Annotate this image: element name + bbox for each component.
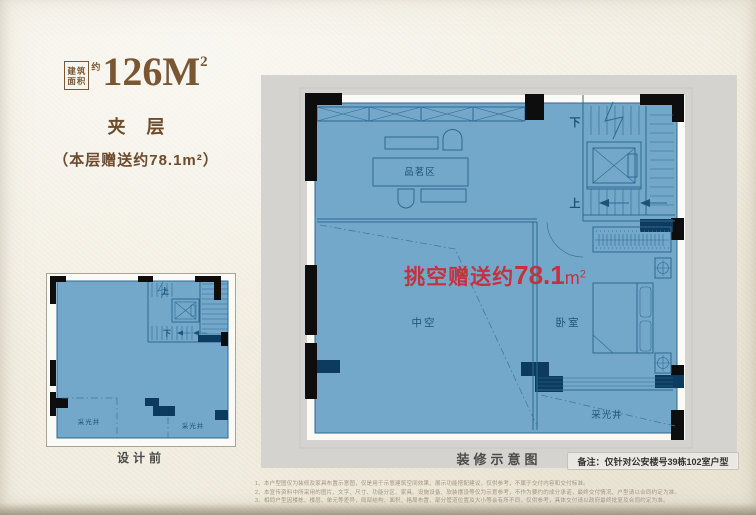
building-area-box: 建筑 面积 <box>64 61 89 90</box>
bedroom-label: 卧室 <box>556 316 581 329</box>
small-up-label: 上 <box>161 286 169 296</box>
building-area-header: 建筑 面积 约 126M 2 <box>36 50 236 94</box>
stairs-down-label: 下 <box>570 116 581 129</box>
gift-highlight-sup: 2 <box>580 269 586 281</box>
area-approx-label: 约 <box>91 60 100 73</box>
void-label: 中空 <box>412 316 437 329</box>
gift-highlight-unit: m <box>565 268 580 288</box>
small-floor-area <box>57 281 228 438</box>
page-bottom-shadow <box>0 503 756 515</box>
gift-highlight-prefix: 挑空赠送约 <box>404 266 514 289</box>
tea-area-label: 品茗区 <box>404 167 436 178</box>
light-well-label: 采光井 <box>591 409 623 421</box>
small-light-well-left-label: 采光井 <box>78 417 101 426</box>
floor-gift-note: （本层赠送约78.1m²） <box>8 149 264 170</box>
brochure-page: 建筑 面积 约 126M 2 夹 层 （本层赠送约78.1m²） <box>0 0 756 515</box>
gift-highlight-value: 78.1 <box>514 260 565 290</box>
stairs-up-label: 上 <box>570 196 581 210</box>
floor-name: 夹 层 <box>36 113 236 139</box>
gift-highlight: 挑空赠送约78.1m2 <box>380 260 610 291</box>
small-light-well-right-label: 采光井 <box>182 421 205 430</box>
small-down-label: 下 <box>163 329 171 338</box>
remark-note: 备注：仅针对公安楼号39栋102室户型 <box>567 452 739 470</box>
small-plan-caption: 设计前 <box>45 449 237 466</box>
legal-disclaimer: 1、本户型图仅为装修及家具布置示意图，仅是用于示意建筑空间效果、展示功能搭配建议… <box>255 480 741 506</box>
area-box-line2: 面积 <box>67 76 86 86</box>
disclaimer-line: 2、本宣传资料中所采用的图片、文字、尺寸、功能分区、家具、设施设备、软装摆设等仅… <box>255 489 741 498</box>
area-value: 126M <box>102 50 200 94</box>
area-superscript: 2 <box>200 54 208 71</box>
disclaimer-line: 1、本户型图仅为装修及家具布置示意图，仅是用于示意建筑空间效果、展示功能搭配建议… <box>255 480 741 489</box>
area-box-line1: 建筑 <box>67 66 86 76</box>
small-floor-plan: 上 下 采光井 采光井 <box>45 272 237 448</box>
